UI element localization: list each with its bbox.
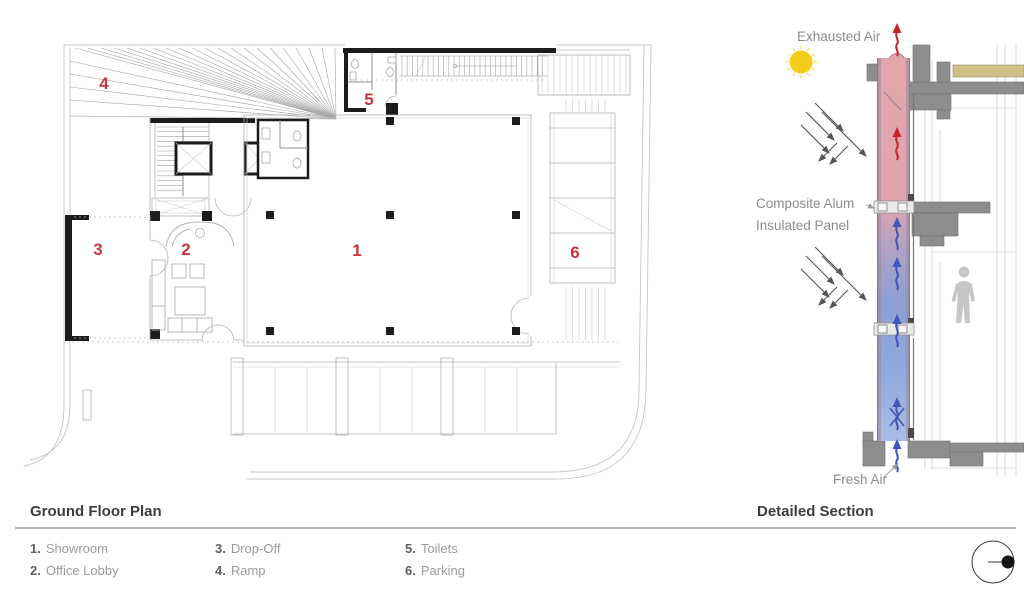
legend-item-parking: 6.Parking: [405, 563, 465, 578]
bottom-parking-row: [72, 342, 620, 435]
exhausted-air-label: Exhausted Air: [797, 29, 880, 44]
street-lines: [24, 45, 652, 479]
section-cut-marker-icon: [972, 541, 1015, 583]
fresh-air-label: Fresh Air: [833, 472, 887, 487]
facade-cavity: [874, 54, 914, 442]
room-numbers: 1 2 3 4 5 6: [93, 74, 579, 262]
legend-item-office-lobby: 2.Office Lobby: [30, 563, 119, 578]
room-number-3: 3: [93, 240, 102, 259]
parking-strip: [550, 99, 615, 340]
detailed-section: [785, 23, 1024, 477]
section-title: Detailed Section: [757, 503, 874, 520]
legend-item-drop-off: 3.Drop-Off: [215, 541, 280, 556]
room-number-4: 4: [99, 74, 109, 93]
legend-item-showroom: 1.Showroom: [30, 541, 108, 556]
room-number-6: 6: [570, 243, 579, 262]
core-block: [150, 118, 310, 216]
ramp-area: [70, 48, 336, 119]
office-lobby: [147, 211, 244, 344]
room-number-5: 5: [364, 90, 373, 109]
panel-label-line2: Insulated Panel: [756, 218, 849, 233]
drop-off: [65, 215, 148, 341]
ground-floor-plan: 1 2 3 4 5 6: [24, 45, 652, 479]
top-wall-and-stair: [343, 48, 630, 95]
roof-finish-bar: [953, 65, 1024, 77]
panel-label-line1: Composite Alum: [756, 196, 854, 211]
person-silhouette: [952, 267, 976, 324]
room-number-1: 1: [352, 241, 361, 260]
legend-item-toilets: 5.Toilets: [405, 541, 458, 556]
title-rule: [15, 527, 1016, 529]
architecture-sheet: 1 2 3 4 5 6: [0, 0, 1024, 599]
plan-title: Ground Floor Plan: [30, 503, 162, 520]
room-number-2: 2: [181, 240, 190, 259]
sun-icon: [785, 46, 817, 78]
legend-item-ramp: 4.Ramp: [215, 563, 266, 578]
